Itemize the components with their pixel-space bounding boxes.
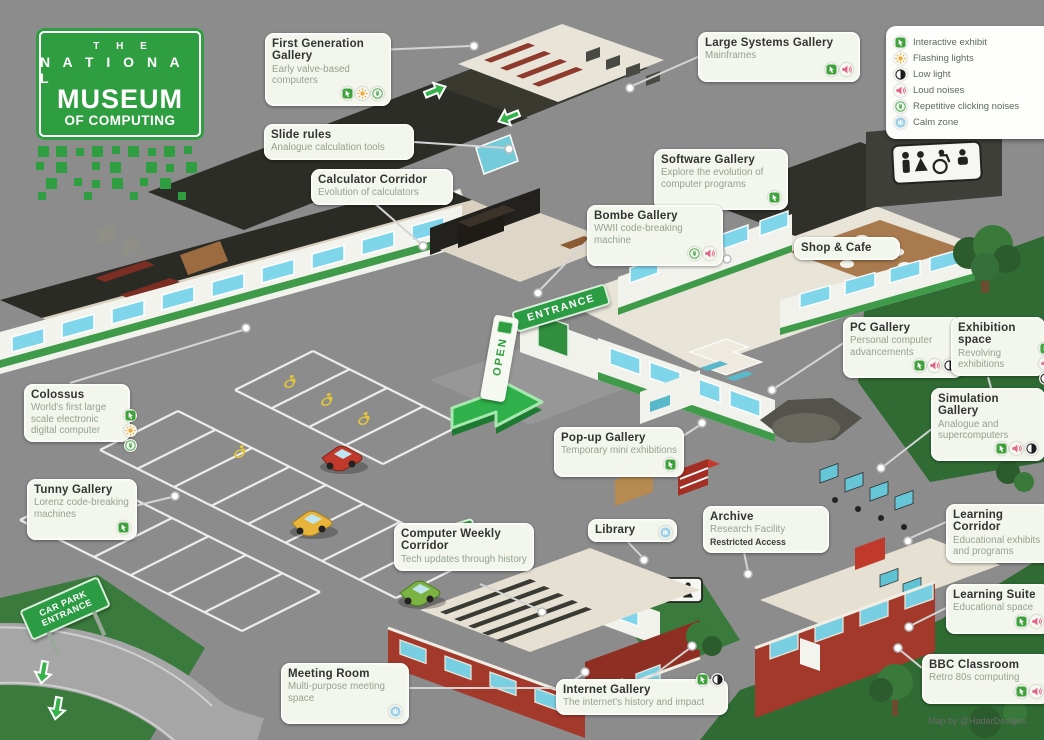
map-label-simulation-gallery: Simulation Gallery Analogue and supercom…: [931, 388, 1044, 461]
mini-logo: [497, 320, 514, 334]
map-label-tunny-gallery: Tunny Gallery Lorenz code-breaking machi…: [27, 479, 137, 540]
loud-icon: [703, 247, 716, 260]
map-label-bbc-classroom: BBC Classroom Retro 80s computing: [922, 654, 1044, 704]
logo-line-the: T H E: [93, 41, 154, 52]
map-label-internet-gallery: Internet Gallery The internet's history …: [556, 679, 728, 715]
logo-line-of-computing: OF COMPUTING: [65, 113, 176, 128]
label-subtitle: Retro 80s computing: [929, 672, 1043, 683]
map-label-bombe-gallery: Bombe Gallery WWII code-breaking machine: [587, 205, 723, 266]
label-title: Calculator Corridor: [318, 174, 446, 186]
loud-icon: [928, 359, 941, 372]
label-note: Restricted Access: [710, 537, 822, 547]
label-subtitle: World's first large scale electronic dig…: [31, 402, 123, 436]
low-light-icon: [1025, 442, 1038, 455]
museum-map: T H E N A T I O N A L MUSEUM OF COMPUTIN…: [0, 0, 1044, 740]
map-label-meeting-room: Meeting Room Multi-purpose meeting space: [281, 663, 409, 724]
label-subtitle: Explore the evolution of computer progra…: [661, 167, 781, 190]
label-subtitle: Analogue calculation tools: [271, 142, 407, 153]
map-label-learning-suite: Learning Suite Educational space: [946, 584, 1044, 634]
map-label-library: Library: [588, 519, 677, 542]
interactive-icon: [1039, 342, 1044, 355]
loud-icon: [840, 63, 853, 76]
legend-item-flashing: Flashing lights: [894, 52, 1044, 65]
clicking-icon: [124, 439, 137, 452]
loud-icon: [894, 84, 907, 97]
label-title: Simulation Gallery: [938, 393, 1038, 418]
loud-icon: [1030, 685, 1043, 698]
map-label-calculator-corridor: Calculator Corridor Evolution of calcula…: [311, 169, 453, 205]
interactive-icon: [696, 673, 709, 686]
label-title: Pop-up Gallery: [561, 432, 677, 444]
clicking-icon: [688, 247, 701, 260]
map-label-first-generation-gallery: First Generation Gallery Early valve-bas…: [265, 33, 391, 106]
legend-item-calm: Calm zone: [894, 116, 1044, 129]
interactive-icon: [1015, 685, 1028, 698]
flashing-icon: [124, 424, 137, 437]
map-label-colossus: Colossus World's first large scale elect…: [24, 384, 130, 442]
loud-icon: [1010, 442, 1023, 455]
interactive-icon: [913, 359, 926, 372]
label-title: BBC Classroom: [929, 659, 1043, 671]
label-title: Meeting Room: [288, 668, 402, 680]
label-title: Large Systems Gallery: [705, 37, 853, 49]
car-green: [398, 581, 446, 609]
label-title: Learning Corridor: [953, 509, 1044, 534]
label-title: Slide rules: [271, 129, 407, 141]
open-text: OPEN: [491, 336, 510, 377]
map-label-software-gallery: Software Gallery Explore the evolution o…: [654, 149, 788, 210]
calm-icon: [659, 526, 672, 539]
label-subtitle: Mainframes: [705, 50, 853, 61]
label-subtitle: Analogue and supercomputers: [938, 419, 1038, 442]
label-title: Library: [595, 524, 655, 536]
label-subtitle: WWII code-breaking machine: [594, 223, 716, 246]
interactive-icon: [1015, 615, 1028, 628]
clicking-icon: [371, 87, 384, 100]
interactive-icon: [825, 63, 838, 76]
label-subtitle: Temporary mini exhibitions: [561, 445, 677, 456]
label-title: Tunny Gallery: [34, 484, 130, 496]
label-title: Colossus: [31, 389, 123, 401]
map-label-learning-corridor: Learning Corridor Educational exhibits a…: [946, 504, 1044, 563]
interactive-icon: [341, 87, 354, 100]
map-label-slide-rules: Slide rules Analogue calculation tools: [264, 124, 414, 160]
interactive-icon: [768, 191, 781, 204]
flashing-icon: [894, 52, 907, 65]
label-subtitle: Lorenz code-breaking machines: [34, 497, 130, 520]
label-title: Shop & Cafe: [801, 242, 893, 254]
logo-pixel-pattern: [36, 146, 204, 202]
low-light-icon: [711, 673, 724, 686]
label-title: Learning Suite: [953, 589, 1043, 601]
label-subtitle: Educational space: [953, 602, 1043, 613]
legend-item-loud: Loud noises: [894, 84, 1044, 97]
label-title: PC Gallery: [850, 322, 956, 334]
map-label-computer-weekly-corridor: Computer Weekly Corridor Tech updates th…: [394, 523, 534, 571]
interactive-icon: [995, 442, 1008, 455]
interactive-icon: [664, 458, 677, 471]
legend-item-interactive: Interactive exhibit: [894, 36, 1044, 49]
label-title: First Generation Gallery: [272, 38, 384, 63]
calm-icon: [894, 116, 907, 129]
label-subtitle: Tech updates through history: [401, 554, 527, 565]
loud-icon: [1039, 357, 1044, 370]
map-label-pc-gallery: PC Gallery Personal computer advancement…: [843, 317, 963, 378]
map-label-large-systems-gallery: Large Systems Gallery Mainframes: [698, 32, 860, 82]
calm-icon: [389, 705, 402, 718]
label-title: Computer Weekly Corridor: [401, 528, 527, 553]
legend-item-low-light: Low light: [894, 68, 1044, 81]
label-subtitle: The internet's history and impact: [563, 697, 721, 708]
label-subtitle: Educational exhibits and programs: [953, 535, 1044, 558]
map-label-pop-up-gallery: Pop-up Gallery Temporary mini exhibition…: [554, 427, 684, 477]
label-subtitle: Multi-purpose meeting space: [288, 681, 402, 704]
label-subtitle: Early valve-based computers: [272, 64, 384, 87]
map-credit: Map by @HaderDesigns: [928, 716, 1026, 726]
low-light-icon: [894, 68, 907, 81]
label-title: Archive: [710, 511, 822, 523]
label-title: Exhibition space: [958, 322, 1038, 347]
interactive-icon: [117, 521, 130, 534]
label-title: Software Gallery: [661, 154, 781, 166]
map-legend: Interactive exhibit Flashing lights Low …: [886, 26, 1044, 139]
car-red: [320, 446, 368, 474]
museum-logo: T H E N A T I O N A L MUSEUM OF COMPUTIN…: [36, 28, 204, 140]
interactive-icon: [124, 409, 137, 422]
map-label-exhibition-space: Exhibition space Revolving exhibitions: [951, 317, 1044, 376]
map-label-shop-cafe: Shop & Cafe: [794, 237, 900, 260]
label-subtitle: Evolution of calculators: [318, 187, 446, 198]
disabled-bay-icons: [234, 375, 371, 457]
loud-icon: [1030, 615, 1043, 628]
low-light-icon: [1039, 372, 1044, 385]
logo-line-museum: MUSEUM: [57, 86, 183, 113]
label-subtitle: Personal computer advancements: [850, 335, 956, 358]
interactive-icon: [894, 36, 907, 49]
legend-item-clicking: Repetitive clicking noises: [894, 100, 1044, 113]
flashing-icon: [356, 87, 369, 100]
logo-line-national: N A T I O N A L: [40, 54, 204, 86]
label-subtitle: Research Facility: [710, 524, 822, 535]
label-subtitle: Revolving exhibitions: [958, 348, 1038, 371]
map-label-archive: Archive Research Facility Restricted Acc…: [703, 506, 829, 553]
label-title: Bombe Gallery: [594, 210, 716, 222]
clicking-icon: [894, 100, 907, 113]
car-yellow: [290, 511, 338, 539]
